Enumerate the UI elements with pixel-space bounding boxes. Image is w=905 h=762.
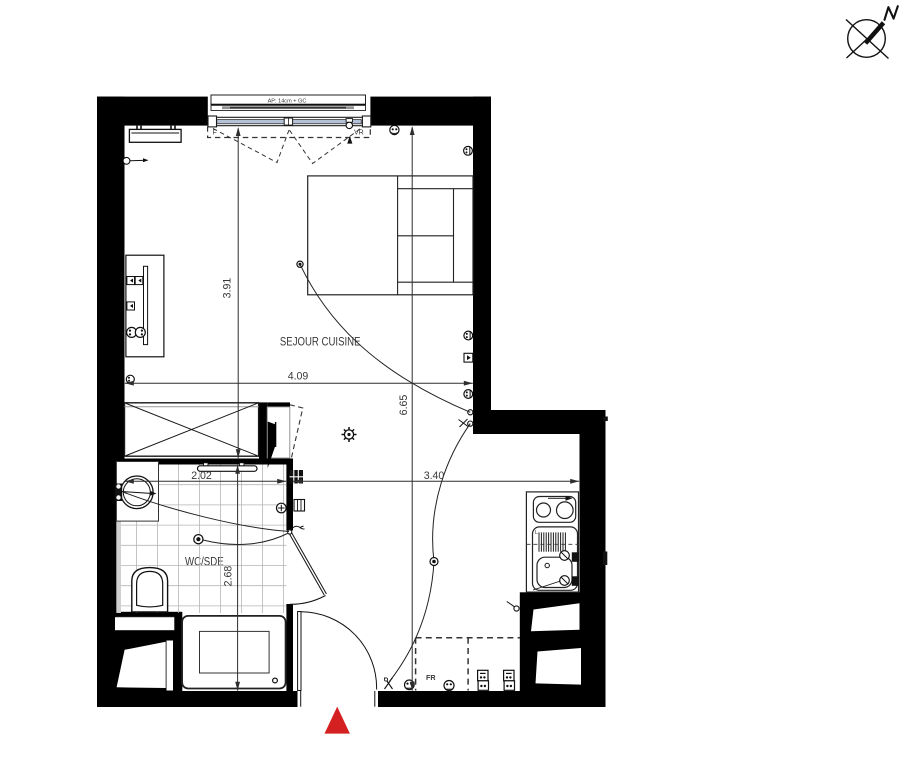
svg-text:3.91: 3.91 bbox=[222, 278, 234, 299]
svg-text:2.68: 2.68 bbox=[223, 566, 235, 587]
svg-text:SEJOUR CUISINE: SEJOUR CUISINE bbox=[280, 337, 361, 349]
svg-text:VR: VR bbox=[354, 130, 364, 137]
svg-text:FR: FR bbox=[426, 673, 436, 682]
svg-text:AP: 14cm + GC: AP: 14cm + GC bbox=[268, 99, 307, 105]
svg-text:6.65: 6.65 bbox=[398, 395, 410, 416]
svg-text:4.09: 4.09 bbox=[288, 370, 309, 382]
svg-text:L: L bbox=[535, 530, 538, 536]
svg-text:3.40: 3.40 bbox=[424, 470, 445, 482]
svg-text:2.02: 2.02 bbox=[191, 470, 212, 482]
svg-text:WC/SDE: WC/SDE bbox=[185, 556, 224, 568]
